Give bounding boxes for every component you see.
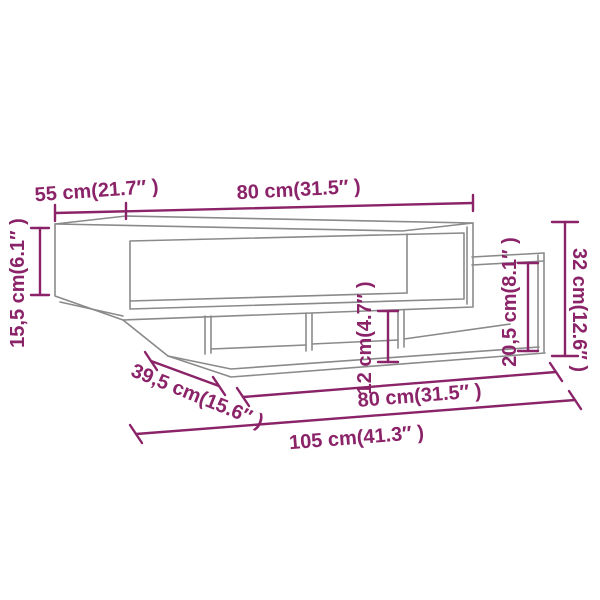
coffee-table-dimension-diagram: 55 cm(21.7″ ) 80 cm(31.5″ ) 15,5 cm(6.1″… — [0, 0, 600, 600]
dimension-label-box-height: 15,5 cm(6.1″ ) — [7, 218, 29, 348]
shelf-floor-line-1 — [211, 345, 306, 349]
dimension-label-side-shelf: 20,5 cm(8.1″ ) — [499, 237, 521, 367]
dimension-label-total-height: 32 cm(12.6″ ) — [568, 248, 590, 372]
dimension-label-top-width: 80 cm(31.5″ ) — [236, 176, 361, 204]
dimension-label-top-depth: 55 cm(21.7″ ) — [34, 176, 159, 207]
box-bottom-thickness — [60, 302, 123, 316]
top-compartment-opening — [130, 233, 464, 309]
dimension-top: 55 cm(21.7″ ) 80 cm(31.5″ ) — [34, 176, 473, 221]
dimension-clearance: 12 cm(4.7″ ) — [354, 282, 398, 395]
diagram-page: 55 cm(21.7″ ) 80 cm(31.5″ ) 15,5 cm(6.1″… — [0, 0, 600, 600]
dimension-label-clearance: 12 cm(4.7″ ) — [354, 282, 376, 395]
furniture-line-drawing — [55, 216, 545, 377]
shelf-floor-line-3 — [404, 324, 510, 339]
dimension-total-height: 32 cm(12.6″ ) — [552, 222, 590, 372]
dimension-label-total-width: 105 cm(41.3″ ) — [288, 422, 425, 455]
dimension-box-height: 15,5 cm(6.1″ ) — [7, 218, 49, 348]
top-face-edges — [55, 223, 473, 231]
dimension-shelf-depth: 39,5 cm(15.6″ ) — [128, 352, 267, 433]
dimension-top-line — [55, 203, 473, 213]
